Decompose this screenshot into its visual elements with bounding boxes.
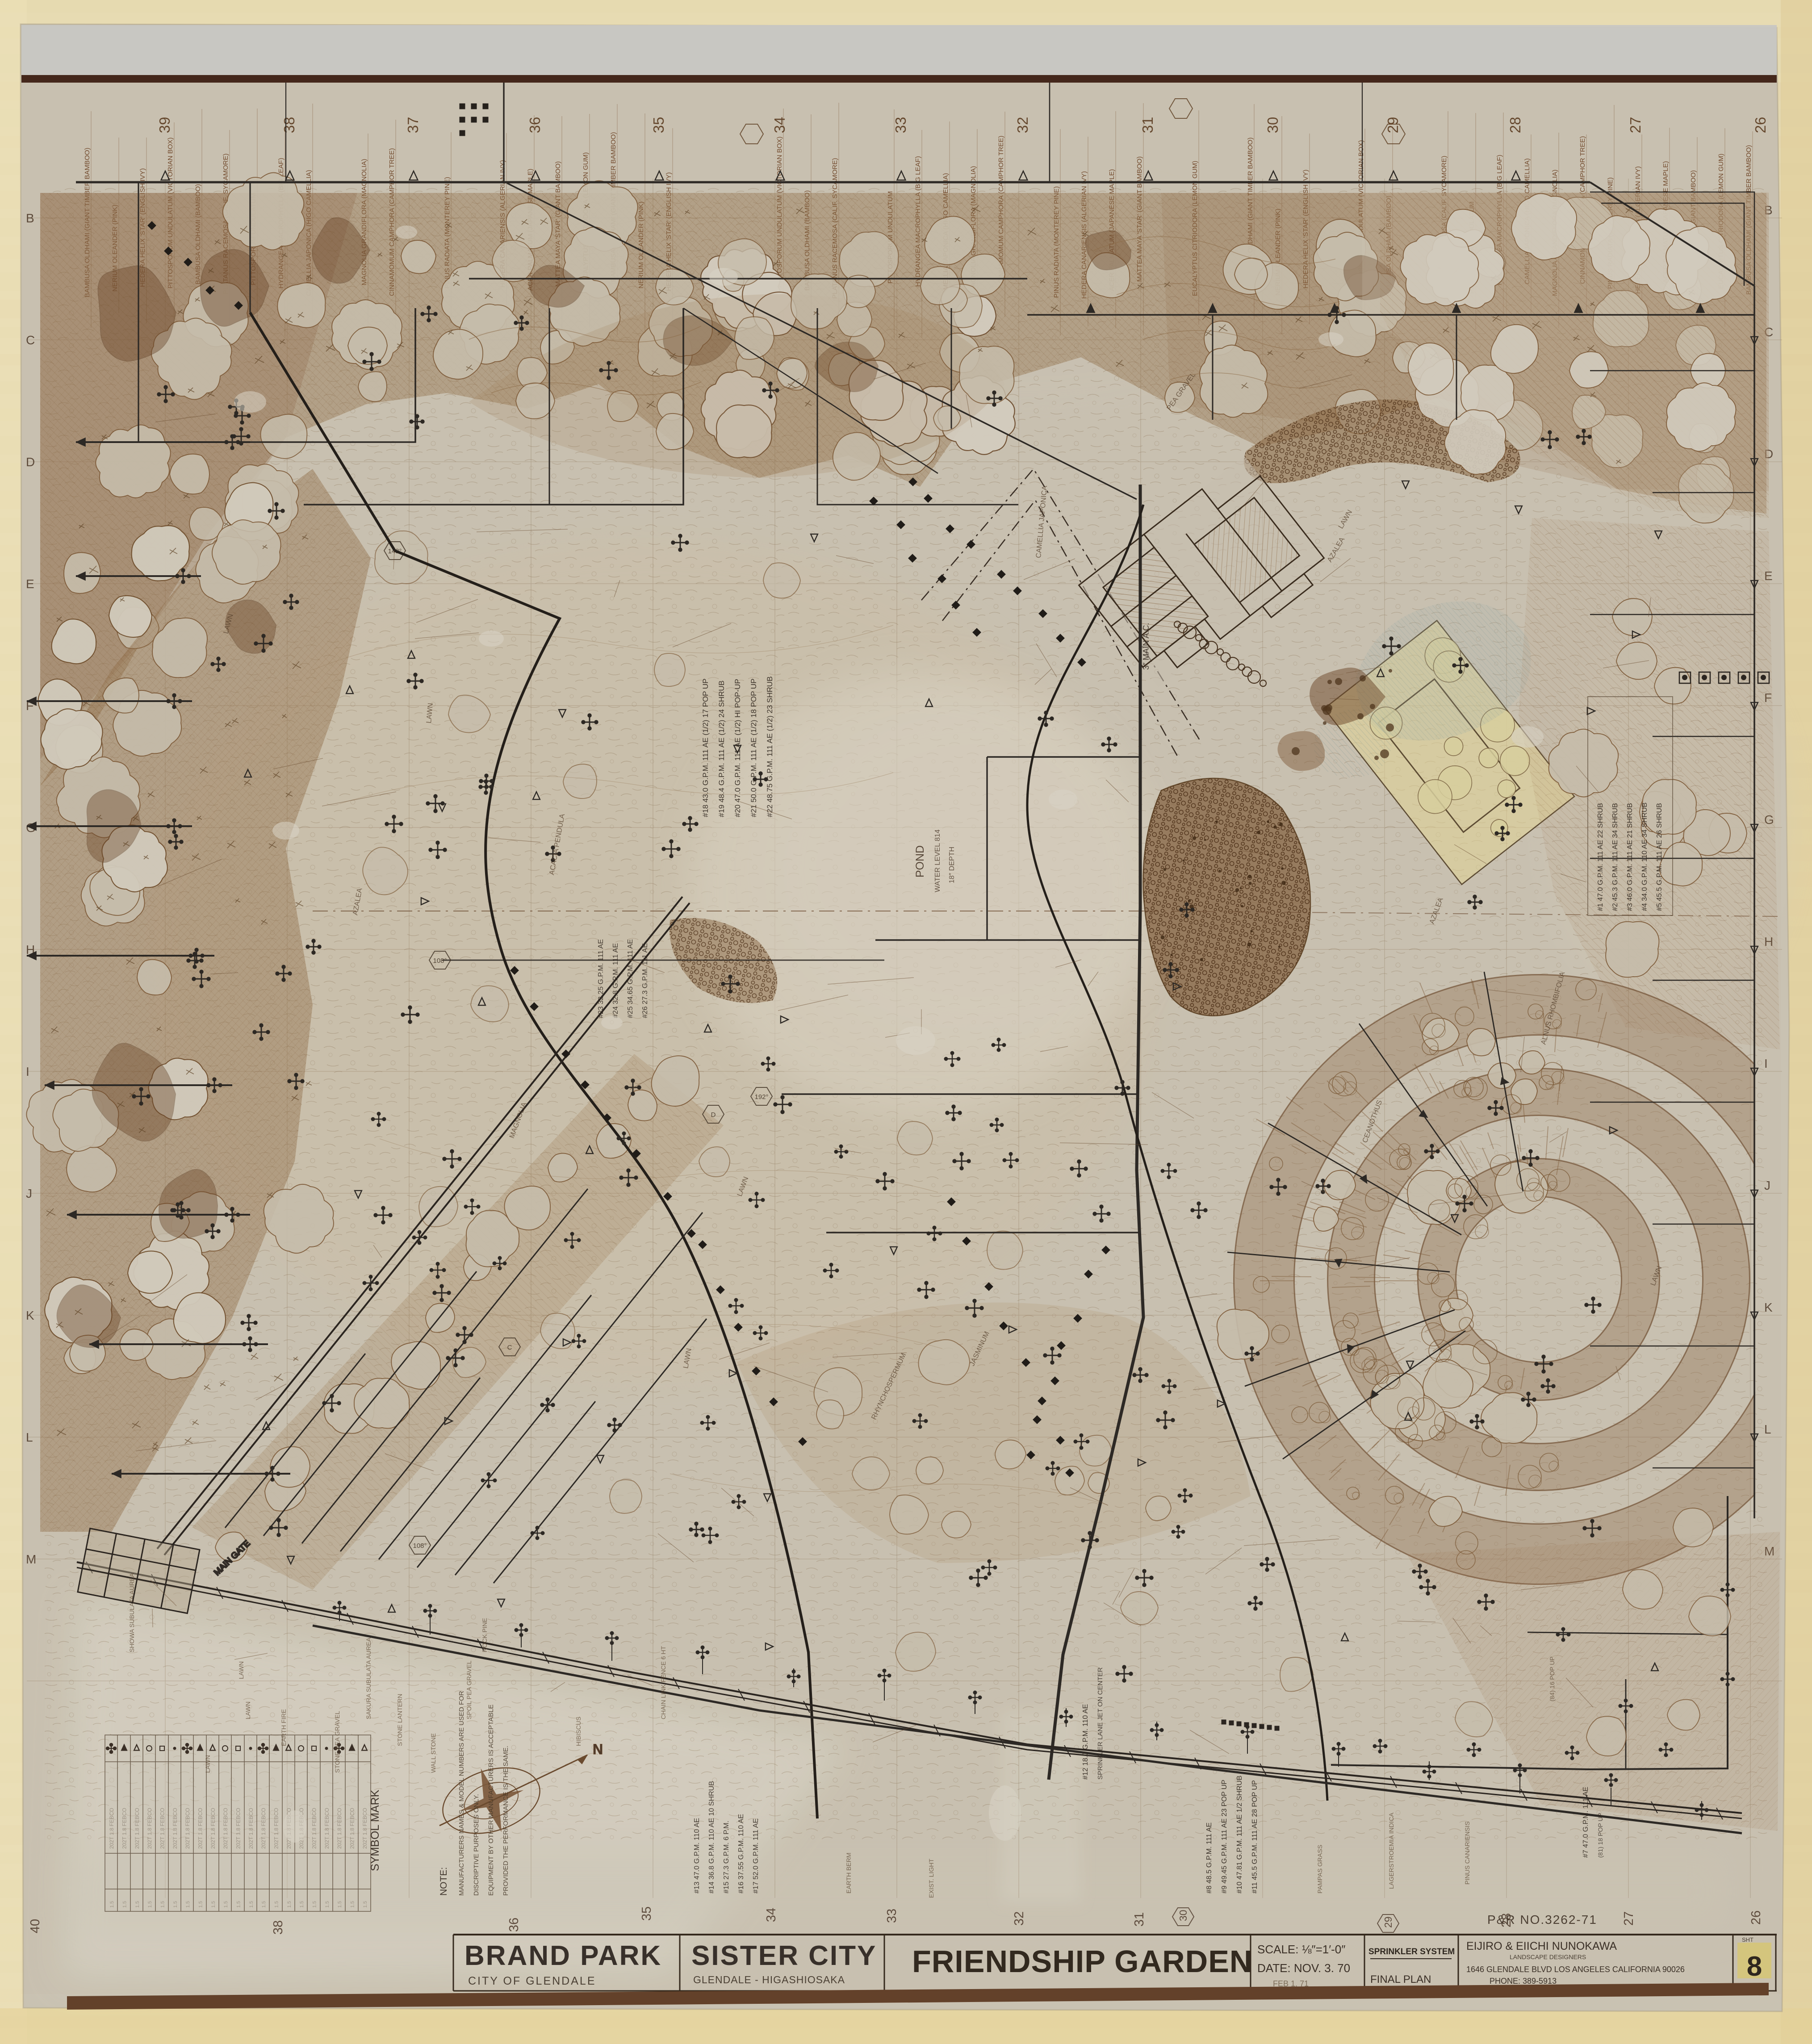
svg-text:PAMPAS GRASS: PAMPAS GRASS [1316,1845,1323,1894]
svg-text:FRIENDSHIP GARDEN: FRIENDSHIP GARDEN [912,1944,1252,1979]
svg-text:CHAIN LINK FENCE 6 HT: CHAIN LINK FENCE 6 HT [660,1646,667,1719]
svg-text:27: 27 [1622,1911,1636,1926]
svg-text:202T 1.8 FEBCO: 202T 1.8 FEBCO [324,1808,330,1849]
svg-text:1.5: 1.5 [287,1901,292,1908]
svg-text:#3 46.0 G.P.M. 111 AE 21 SHR: #3 46.0 G.P.M. 111 AE 21 SHRUB [1626,803,1634,911]
svg-text:1.5: 1.5 [337,1901,343,1908]
svg-text:1.5: 1.5 [185,1901,191,1908]
svg-text:1.5: 1.5 [223,1901,229,1908]
svg-text:#22 48.75 G.P.M. 111 AE (1/2): #22 48.75 G.P.M. 111 AE (1/2) 23 SHRUB [766,676,774,817]
svg-text:#4 34.0 G.P.M. 110 AE 34 SHR: #4 34.0 G.P.M. 110 AE 34 SHRUB [1641,803,1649,911]
svg-text:202T 1.8 FEBCO: 202T 1.8 FEBCO [184,1808,191,1849]
svg-text:SHOWA SUBULATA AUREA: SHOWA SUBULATA AUREA [128,1572,135,1652]
svg-text:LAGERSTROEMIA INDICA: LAGERSTROEMIA INDICA [1388,1812,1395,1889]
svg-text:202T 1.8 FEBCO: 202T 1.8 FEBCO [349,1808,356,1849]
svg-text:M: M [26,1552,36,1566]
svg-text:#10 47.81 G.P.M. 111 AE 1/2: #10 47.81 G.P.M. 111 AE 1/2 SHRUB [1236,1776,1243,1894]
svg-text:202T 1.8 FEBCO: 202T 1.8 FEBCO [235,1808,242,1849]
svg-text:D: D [711,1111,716,1119]
svg-text:202T 1.8 FEBCO: 202T 1.8 FEBCO [260,1808,267,1849]
svg-text:L: L [26,1430,33,1444]
svg-text:#2 45.3 G.P.M. 111 AE 34 SHR: #2 45.3 G.P.M. 111 AE 34 SHRUB [1611,803,1619,911]
svg-text:3″ MAIN A.C.: 3″ MAIN A.C. [1142,623,1151,670]
svg-text:#12 18.0 G.P.M. 110 AE: #12 18.0 G.P.M. 110 AE [1082,1704,1089,1780]
svg-text:EXIST. LIGHT: EXIST. LIGHT [928,1859,935,1898]
svg-text:1.5: 1.5 [211,1901,216,1908]
svg-text:I: I [26,1065,29,1078]
svg-text:#13 47.0 G.P.M. 110 AE: #13 47.0 G.P.M. 110 AE [693,1818,701,1894]
svg-text:33: 33 [885,1909,899,1923]
svg-text:STONE PEA GRAVEL: STONE PEA GRAVEL [334,1711,341,1773]
svg-text:32: 32 [1014,117,1031,134]
svg-text:SISTER CITY: SISTER CITY [691,1940,877,1971]
svg-text:1.5: 1.5 [236,1901,242,1908]
svg-text:32: 32 [1012,1911,1026,1926]
svg-text:1.5: 1.5 [325,1901,330,1908]
svg-text:40: 40 [28,1919,42,1933]
svg-text:202T 1.8 FEBCO: 202T 1.8 FEBCO [362,1808,368,1849]
svg-text:K: K [1764,1300,1773,1314]
svg-text:30: 30 [1177,1910,1189,1921]
svg-text:202T 1.8 FEBCO: 202T 1.8 FEBCO [222,1808,229,1849]
svg-text:1.5: 1.5 [299,1901,305,1908]
svg-text:202T 1.8 FEBCO: 202T 1.8 FEBCO [109,1808,115,1849]
svg-text:#9 49.45 G.P.M. 111 AE 23: #9 49.45 G.P.M. 111 AE 23 POP UP [1221,1780,1228,1894]
svg-text:ROCK PINE: ROCK PINE [481,1618,488,1652]
svg-text:1.5: 1.5 [147,1901,153,1908]
svg-text:26: 26 [1749,1910,1763,1925]
svg-text:EARTH FIRE: EARTH FIRE [280,1709,287,1746]
svg-text:1.5: 1.5 [350,1901,356,1908]
svg-text:202T 1.8 FEBCO: 202T 1.8 FEBCO [146,1808,153,1849]
svg-text:31: 31 [1132,1912,1147,1927]
svg-text:202T 1.8 FEBCO: 202T 1.8 FEBCO [197,1808,204,1849]
svg-text:28: 28 [1507,117,1523,134]
svg-text:108°: 108° [413,1542,427,1550]
svg-text:NOTE:: NOTE: [439,1867,449,1896]
svg-text:LAWN: LAWN [204,1755,211,1773]
svg-text:#25 34.65 G.P.M. 111 AE: #25 34.65 G.P.M. 111 AE [627,939,634,1018]
svg-text:33: 33 [892,117,909,134]
svg-text:202T 1.8 FEBCO: 202T 1.8 FEBCO [121,1808,128,1849]
svg-text:202T 1.8 FEBCO: 202T 1.8 FEBCO [159,1808,166,1849]
svg-text:I: I [1764,1057,1768,1070]
svg-text:1.5: 1.5 [363,1901,368,1908]
svg-text:STONE LANTERN: STONE LANTERN [396,1694,403,1746]
svg-text:LAWN: LAWN [244,1701,251,1719]
svg-text:EIJIRO & EIICHI NUNOKAWA: EIJIRO & EIICHI NUNOKAWA [1466,1940,1617,1952]
svg-text:39: 39 [156,117,173,134]
svg-text:EARTH BERM: EARTH BERM [845,1852,852,1894]
svg-text:J: J [1764,1179,1770,1192]
svg-text:J: J [26,1187,32,1200]
svg-text:L: L [1764,1422,1771,1436]
svg-text:#14 36.8 G.P.M. 110 AE 10 S: #14 36.8 G.P.M. 110 AE 10 SHRUB [708,1781,716,1894]
svg-text:SAKURA SUBULATA AUREA: SAKURA SUBULATA AUREA [365,1637,372,1719]
svg-text:#15 27.3 G.P.M. 6 P.M.: #15 27.3 G.P.M. 6 P.M. [723,1821,730,1894]
svg-text:1.5: 1.5 [249,1901,254,1908]
svg-text:LANDSCAPE DESIGNERS: LANDSCAPE DESIGNERS [1510,1953,1586,1960]
svg-text:BRAND PARK: BRAND PARK [465,1940,662,1971]
svg-text:1.5: 1.5 [160,1901,166,1908]
svg-text:C: C [507,1344,512,1351]
svg-text:36: 36 [527,117,543,134]
svg-text:1.5: 1.5 [135,1901,140,1908]
svg-text:30: 30 [1264,117,1281,134]
svg-text:1.5: 1.5 [109,1901,115,1908]
svg-text:192°: 192° [754,1093,768,1101]
svg-text:GLENDALE - HIGASHIOSAKA: GLENDALE - HIGASHIOSAKA [693,1974,845,1985]
svg-text:C: C [26,333,35,347]
svg-text:#19 48.4 G.P.M. 111 AE (1/2): #19 48.4 G.P.M. 111 AE (1/2) 24 SHRUB [717,681,726,817]
svg-text:#18 43.0 G.P.M. 111 AE (1/2): #18 43.0 G.P.M. 111 AE (1/2) 17 POP UP [701,678,710,817]
svg-text:K: K [26,1308,34,1322]
svg-text:SPOIL PEA GRAVEL: SPOIL PEA GRAVEL [465,1660,473,1719]
svg-text:B: B [26,211,34,225]
svg-text:31: 31 [1139,117,1156,134]
svg-text:#7 47.0 G.P.M. 111 AE: #7 47.0 G.P.M. 111 AE [1582,1787,1590,1858]
svg-text:DISCRIPTIVE PURPOSES ONLY.: DISCRIPTIVE PURPOSES ONLY. [473,1794,480,1896]
svg-text:29: 29 [1382,1916,1394,1928]
svg-text:N: N [593,1741,603,1757]
svg-text:#23 32.25 G.P.M. 111 AE: #23 32.25 G.P.M. 111 AE [597,939,605,1018]
svg-text:1.5: 1.5 [274,1901,280,1908]
svg-text:1.5: 1.5 [261,1901,267,1908]
svg-text:38: 38 [281,117,297,134]
svg-text:1.5: 1.5 [312,1901,318,1908]
svg-text:35: 35 [650,117,667,134]
svg-text:34: 34 [771,117,788,134]
svg-text:CITY OF GLENDALE: CITY OF GLENDALE [468,1975,596,1987]
svg-text:(84) 16 POP UP: (84) 16 POP UP [1548,1656,1556,1701]
svg-text:EQUIPMENT BY OTHER MANUFACTURE: EQUIPMENT BY OTHER MANUFACTURERS IS ACCE… [487,1705,495,1896]
svg-text:SPRINKLER LANE JET ON CENTER: SPRINKLER LANE JET ON CENTER [1096,1667,1104,1780]
svg-text:27: 27 [1627,117,1644,134]
svg-text:SHT: SHT [1742,1936,1753,1943]
svg-text:(81) 18 POP UP: (81) 18 POP UP [1597,1813,1604,1858]
svg-text:202T 1.8 FEBCO: 202T 1.8 FEBCO [273,1808,280,1849]
svg-text:#8 48.5 G.P.M. 111 AE: #8 48.5 G.P.M. 111 AE [1205,1822,1213,1894]
svg-text:26: 26 [1752,117,1769,134]
svg-text:HIBISCUS: HIBISCUS [575,1717,582,1746]
svg-text:1.5: 1.5 [122,1901,128,1908]
svg-text:#17 52.0 G.P.M. 111 AE: #17 52.0 G.P.M. 111 AE [752,1818,760,1894]
svg-text:8: 8 [1747,1951,1762,1982]
svg-text:1.5: 1.5 [173,1901,178,1908]
svg-text:37: 37 [405,117,421,134]
svg-text:#1 47.0 G.P.M. 111 AE 22 SHR: #1 47.0 G.P.M. 111 AE 22 SHRUB [1597,803,1604,911]
svg-text:#16 37.55 G.P.M. 110 AE: #16 37.55 G.P.M. 110 AE [737,1814,745,1894]
svg-text:#26 27.3 G.P.M. 111 AE: #26 27.3 G.P.M. 111 AE [641,943,649,1018]
svg-text:#5 45.5 G.P.M. 111 AE 26 SHR: #5 45.5 G.P.M. 111 AE 26 SHRUB [1656,803,1663,911]
svg-text:#20 47.0 G.P.M. 111 AE (1/2): #20 47.0 G.P.M. 111 AE (1/2) HI POP-UP [733,679,742,817]
svg-text:202T 1.8 FEBCO: 202T 1.8 FEBCO [248,1808,254,1849]
svg-text:E: E [26,577,34,591]
svg-text:202T 1.8 FEBCO: 202T 1.8 FEBCO [311,1808,318,1849]
svg-text:WATER LEVEL 814: WATER LEVEL 814 [934,829,942,892]
svg-text:1646 GLENDALE BLVD LOS ANGELES: 1646 GLENDALE BLVD LOS ANGELES CALIFORNI… [1466,1965,1685,1974]
svg-text:38: 38 [271,1920,285,1935]
svg-text:SCALE: ⅛″=1′-0″: SCALE: ⅛″=1′-0″ [1257,1943,1345,1956]
svg-text:202T 1.8 FEBCO: 202T 1.8 FEBCO [210,1808,216,1849]
svg-text:PHONE: 389-5913: PHONE: 389-5913 [1490,1977,1557,1985]
svg-text:D: D [26,455,35,469]
svg-text:PINUS CANARIENSIS: PINUS CANARIENSIS [1464,1821,1471,1885]
svg-text:POND: POND [914,845,926,878]
svg-text:FINAL PLAN: FINAL PLAN [1370,1973,1431,1985]
svg-text:#24 32.8 G.P.M. 111 AE: #24 32.8 G.P.M. 111 AE [612,943,619,1018]
svg-text:202T 1.8 FEBCO: 202T 1.8 FEBCO [172,1808,178,1849]
svg-text:SYMBOL MARK: SYMBOL MARK [369,1789,381,1871]
svg-text:MANUFACTURERS NAMES & MODEL NU: MANUFACTURERS NAMES & MODEL NUMBERS ARE … [458,1691,465,1896]
svg-text:WALL STONE: WALL STONE [430,1733,437,1773]
svg-text:18″ DEPTH: 18″ DEPTH [948,847,956,883]
svg-text:SPRINKLER SYSTEM: SPRINKLER SYSTEM [1368,1947,1455,1956]
svg-text:202T 1.8 FEBCO: 202T 1.8 FEBCO [336,1808,343,1849]
svg-text:108°: 108° [433,957,447,965]
svg-text:LAWN: LAWN [238,1661,245,1679]
svg-text:35: 35 [640,1906,654,1921]
svg-text:202T 1.8 FEBCO: 202T 1.8 FEBCO [134,1808,140,1849]
svg-text:PROVIDED THE PERFORMANCE IS TH: PROVIDED THE PERFORMANCE IS THE SAME. [502,1746,510,1896]
svg-text:34: 34 [764,1908,778,1922]
svg-text:36: 36 [507,1918,521,1932]
svg-text:#21 50.0 G.P.M. 111 AE (1/2): #21 50.0 G.P.M. 111 AE (1/2) 18 POP UP [749,678,758,817]
svg-text:1.5: 1.5 [198,1901,204,1908]
svg-text:#11 45.5 G.P.M. 111 AE 28: #11 45.5 G.P.M. 111 AE 28 POP UP [1251,1780,1259,1894]
svg-text:P&R NO.3262-71: P&R NO.3262-71 [1487,1913,1597,1927]
svg-text:DATE: NOV. 3. 70: DATE: NOV. 3. 70 [1257,1961,1350,1975]
